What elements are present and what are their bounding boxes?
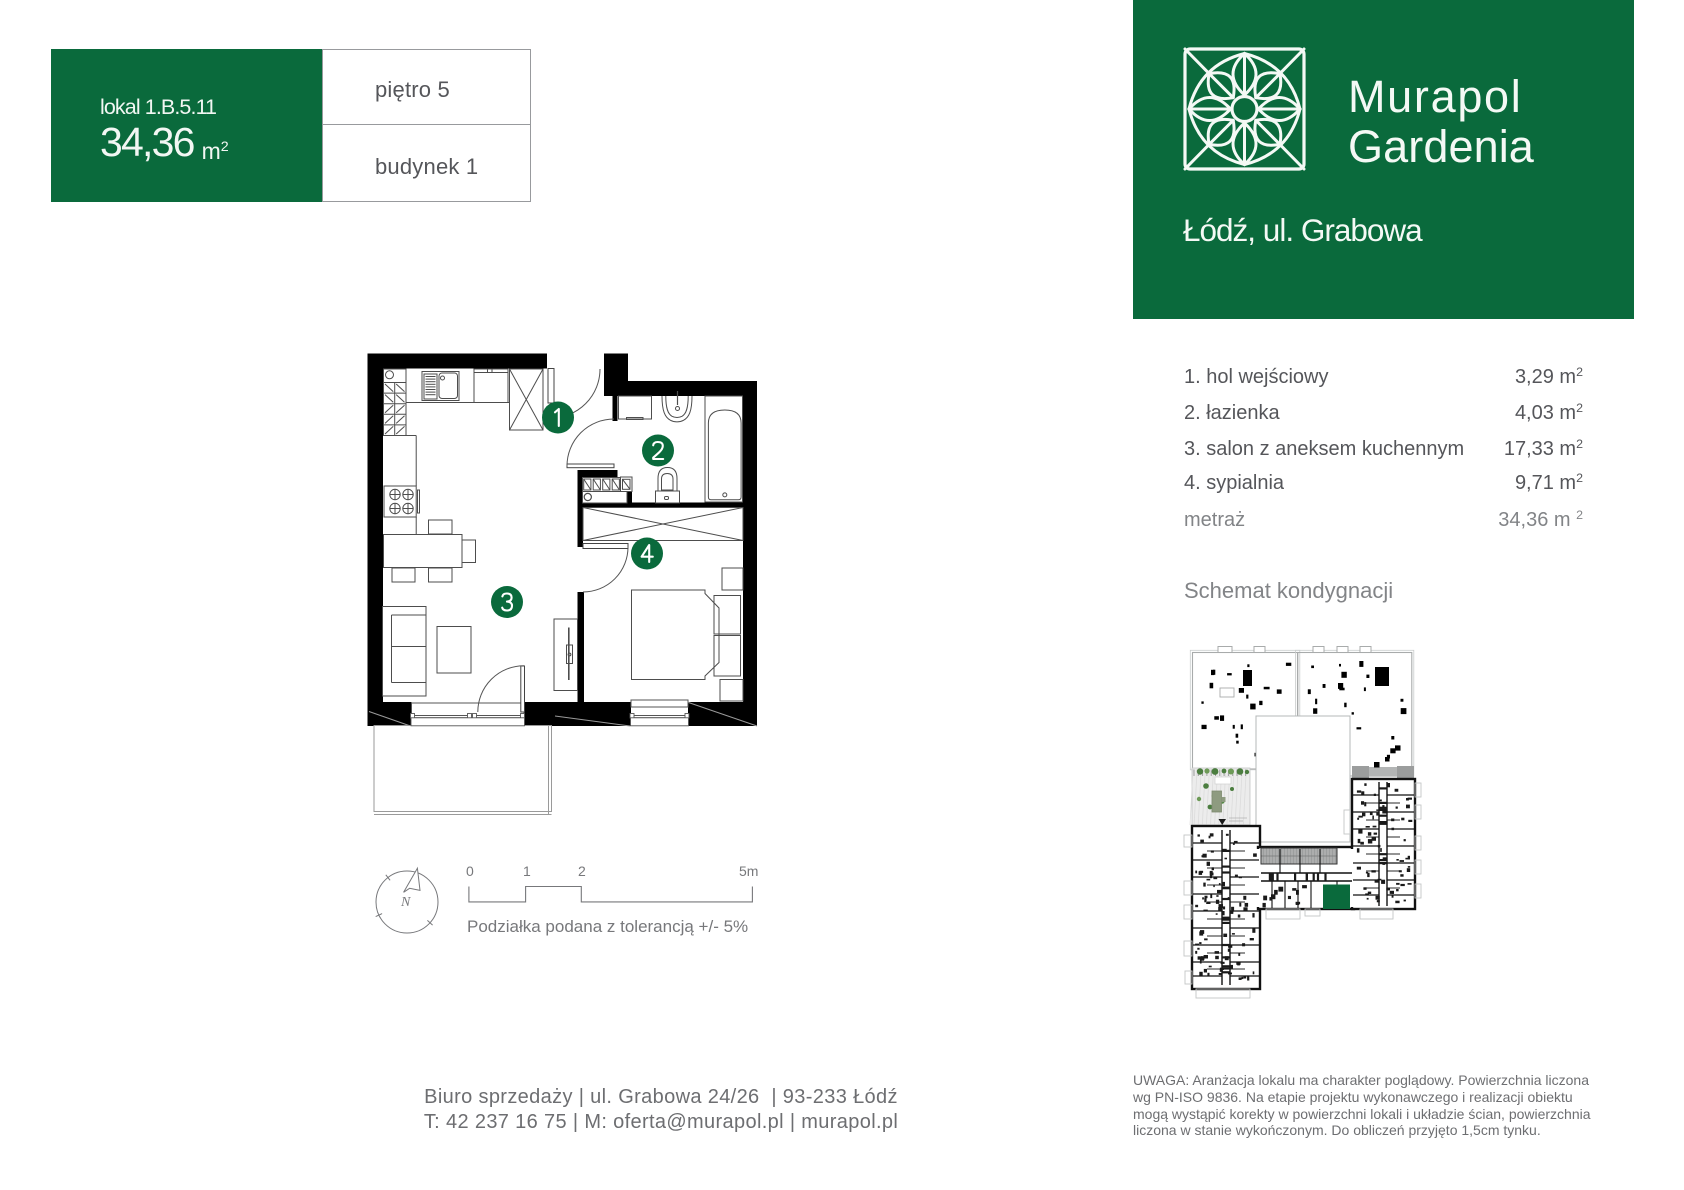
svg-text:N: N — [400, 895, 411, 910]
